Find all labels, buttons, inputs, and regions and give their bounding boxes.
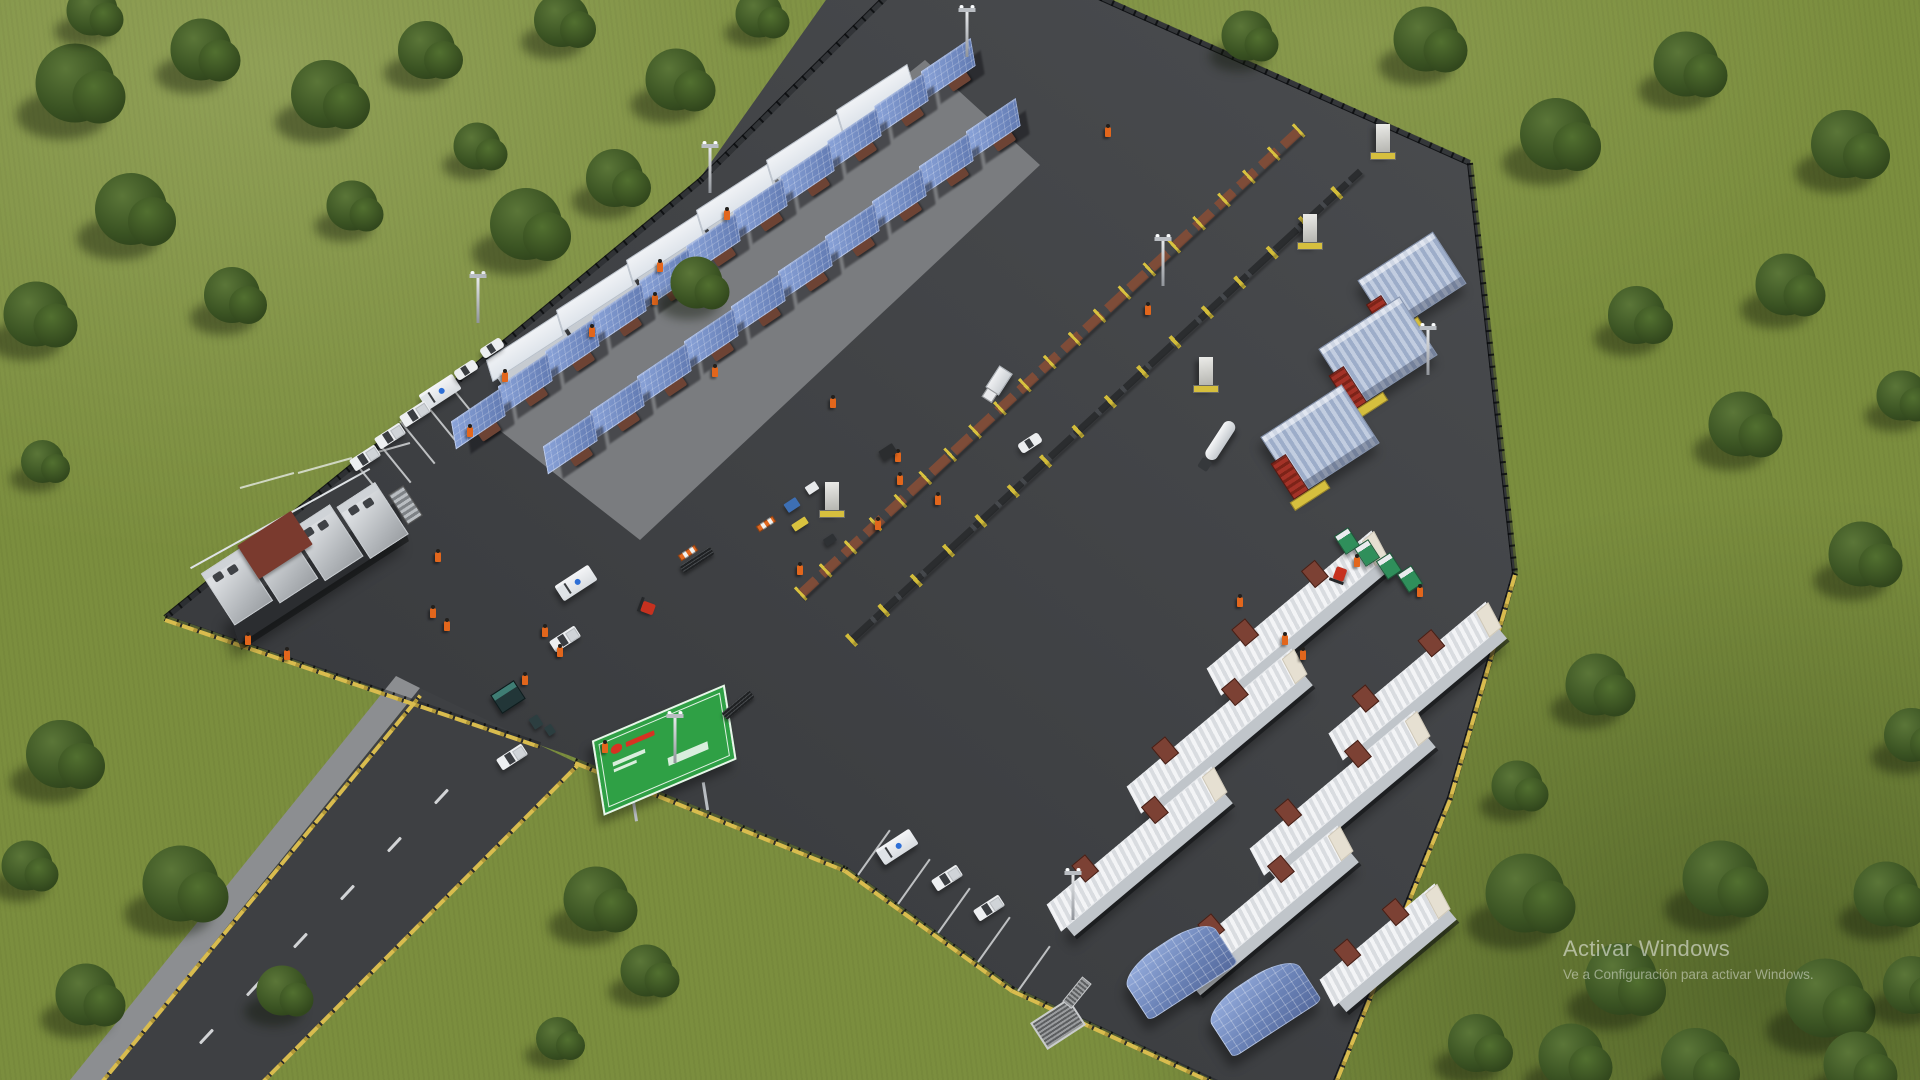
worker-figure [602,743,608,753]
flood-light-pole [1162,240,1165,286]
flood-light-pole [709,147,712,193]
worker-figure [435,552,441,562]
pickup-truck [496,743,528,770]
ambulance [554,565,597,602]
flood-light-pole [674,717,677,763]
storage-trailer [1317,885,1463,1018]
site-entrance-sign [589,702,741,809]
equipment-box [823,533,837,546]
worker-figure [1354,557,1360,567]
flood-light-pole [1072,874,1075,920]
concrete-pillar [825,482,839,514]
equipment-box [783,497,800,513]
flood-light-pole [966,11,969,57]
car [453,359,479,381]
worker-figure [1105,127,1111,137]
worker-figure [284,650,290,660]
equipment-box [805,481,820,495]
flood-light-pole [477,277,480,323]
worker-figure [724,210,730,220]
worker-figure [875,520,881,530]
pickup-truck [931,864,963,891]
worker-figure [502,372,508,382]
safety-barrier [756,516,777,533]
concrete-pillar [1303,214,1317,246]
equipment-box [544,724,556,737]
worker-figure [444,621,450,631]
pickup-truck [549,625,581,652]
worker-figure [1237,597,1243,607]
worker-figure [797,565,803,575]
worker-figure [1282,635,1288,645]
worker-figure [830,398,836,408]
concrete-pillar [1199,357,1213,389]
pickup-truck [374,422,406,449]
worker-figure [542,627,548,637]
worker-figure [467,427,473,437]
box-truck [980,367,1010,403]
flood-light-pole [1427,329,1430,375]
worker-figure [430,608,436,618]
worker-figure [897,475,903,485]
worker-figure [895,452,901,462]
pickup-truck [399,400,431,427]
worker-figure [1417,587,1423,597]
watermark-subtitle: Ve a Configuración para activar Windows. [1563,967,1814,982]
equipment-box [791,516,809,531]
worker-figure [652,295,658,305]
forklift [640,601,656,616]
concrete-pillar [1376,124,1390,156]
worker-figure [245,635,251,645]
tanker-truck [1195,416,1240,473]
equipment-box [529,714,544,730]
objects-layer [0,0,1920,1080]
process-equipment-unit [195,461,426,659]
worker-figure [589,327,595,337]
guard-booth [490,680,525,714]
watermark-title: Activar Windows [1563,936,1814,962]
worker-figure [657,262,663,272]
site-3d-render: Activar Windows Ve a Configuración para … [0,0,1920,1080]
worker-figure [557,647,563,657]
worker-figure [1300,650,1306,660]
worker-figure [1145,305,1151,315]
pickup-truck [973,894,1005,921]
drainage-grate [1030,998,1086,1050]
worker-figure [522,675,528,685]
windows-activation-watermark: Activar Windows Ve a Configuración para … [1563,936,1814,982]
worker-figure [712,367,718,377]
worker-figure [935,495,941,505]
car [1017,432,1043,454]
ambulance [875,829,918,866]
